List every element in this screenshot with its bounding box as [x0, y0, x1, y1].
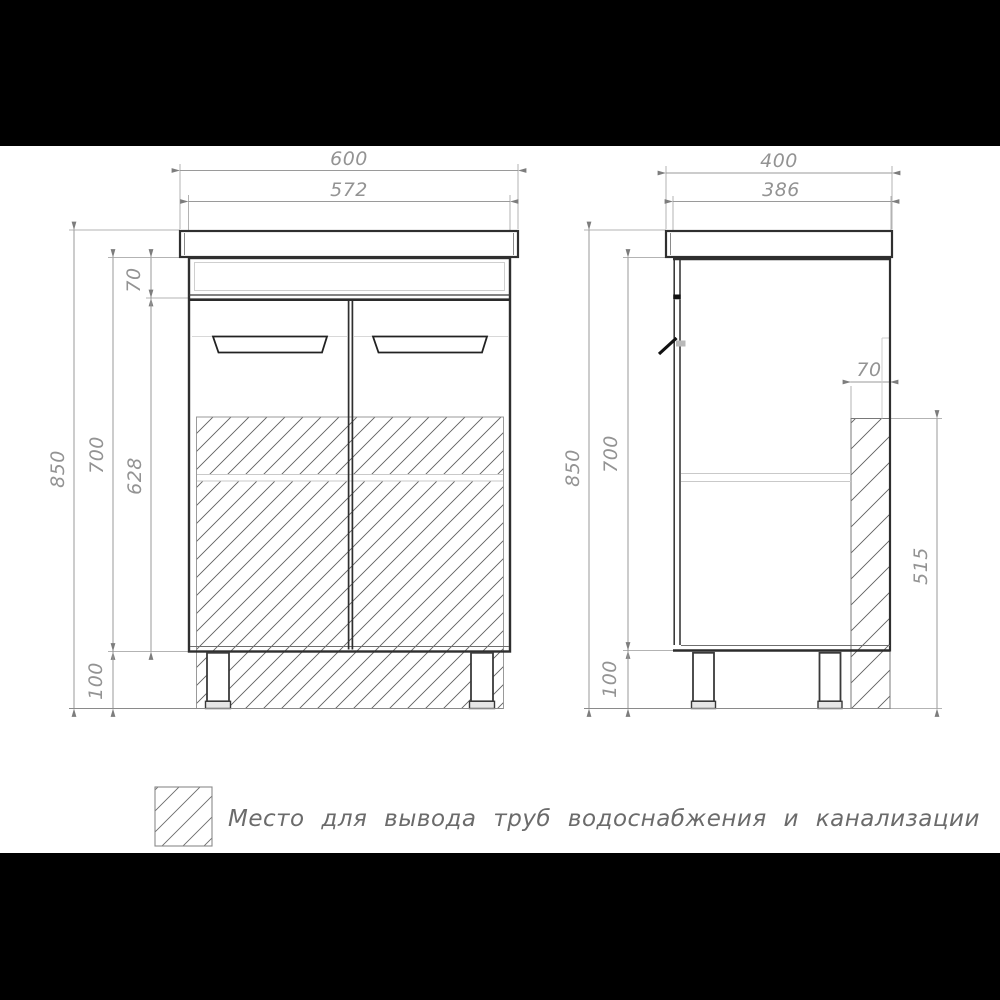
side-dim-cabinet-depth: 386 — [762, 179, 800, 201]
side-dim-pipe-zone-width: 70 — [856, 359, 881, 381]
legend-hatch-swatch — [155, 787, 212, 846]
side-handle-mount — [676, 341, 686, 347]
front-left-leg-foot — [206, 701, 231, 708]
front-dim-inner-height: 628 — [124, 457, 146, 495]
side-dim-total-height: 850 — [562, 449, 584, 487]
front-cabinet-body — [189, 258, 510, 652]
drawing-canvas: 600 572 850 700 628 70 100 — [0, 0, 1000, 1000]
front-dim-total-width: 600 — [330, 148, 368, 170]
side-dim-total-depth: 400 — [760, 150, 798, 172]
front-left-leg — [207, 653, 229, 702]
top-letterbox-bar — [0, 0, 1000, 146]
front-right-leg — [471, 653, 493, 702]
front-plinth-hatch — [197, 652, 504, 709]
front-dim-top-panel: 70 — [123, 267, 145, 292]
side-front-leg-foot — [692, 701, 716, 708]
side-back-leg — [820, 653, 841, 702]
side-front-leg — [693, 653, 714, 702]
front-dim-cabinet-height: 700 — [86, 436, 108, 474]
front-left-door-handle — [213, 337, 327, 353]
side-dim-pipe-zone-height: 515 — [910, 547, 932, 585]
side-dim-cabinet-height: 700 — [600, 435, 622, 473]
front-countertop — [180, 231, 518, 257]
side-door-gap — [673, 295, 681, 300]
side-dim-leg-height: 100 — [599, 660, 621, 698]
bottom-letterbox-bar — [0, 853, 1000, 1000]
side-countertop — [666, 231, 892, 257]
front-dim-leg-height: 100 — [85, 662, 107, 700]
front-right-leg-foot — [470, 701, 495, 708]
legend-note: Место для вывода труб водоснабжения и ка… — [228, 806, 980, 832]
front-dim-total-height: 850 — [47, 450, 69, 488]
side-back-leg-foot — [818, 701, 842, 708]
side-pipe-zone-hatch — [851, 419, 890, 709]
front-dim-cabinet-width: 572 — [330, 179, 368, 201]
front-right-door-handle — [373, 337, 487, 353]
